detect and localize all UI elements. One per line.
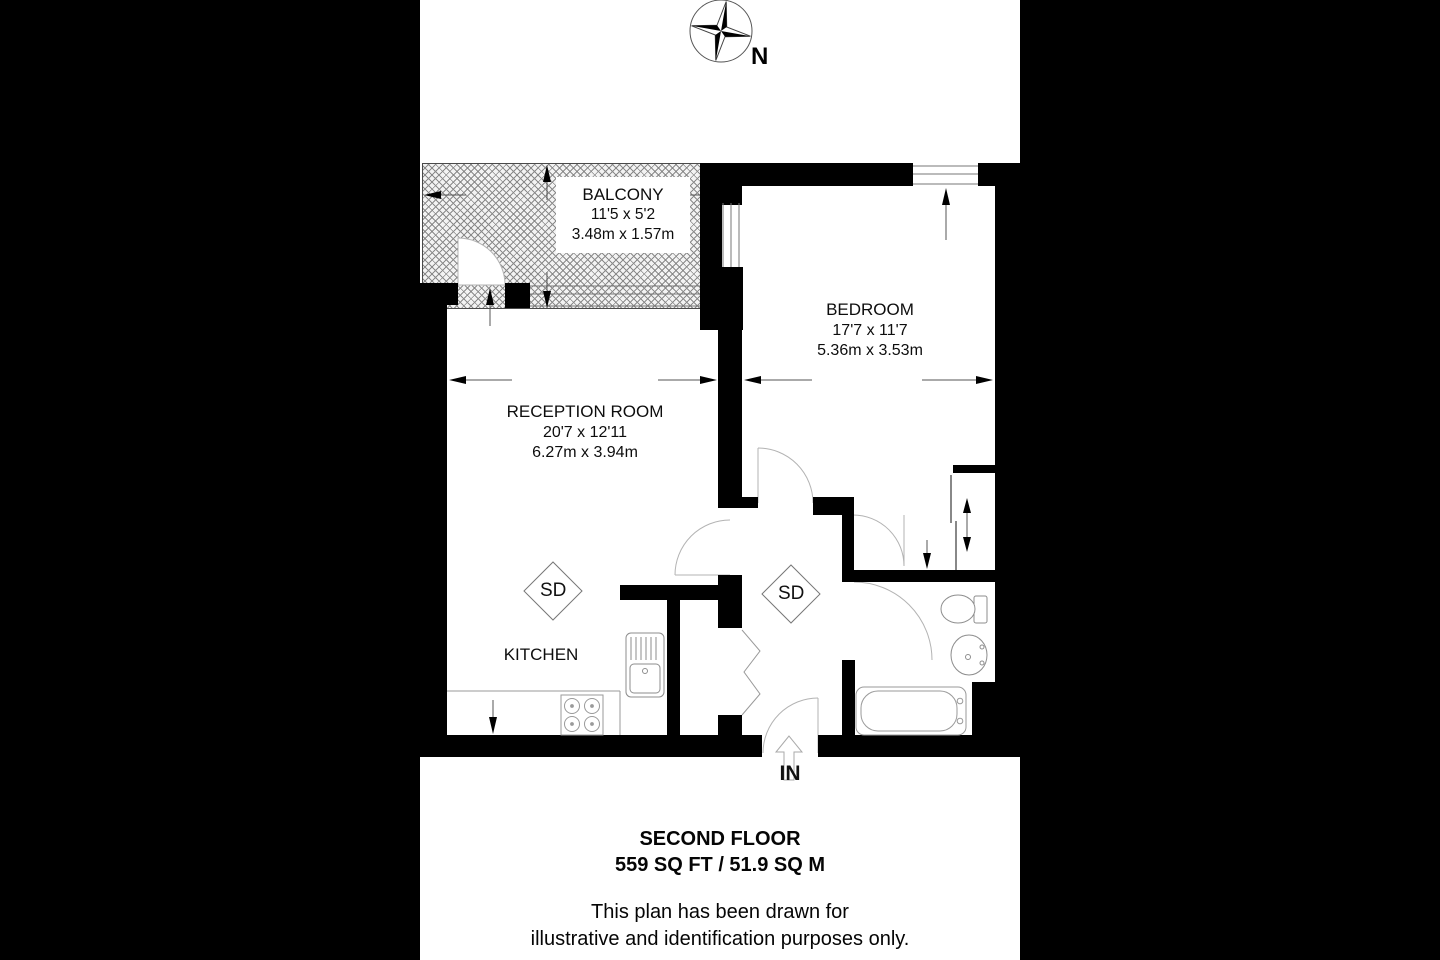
disclaimer-line-2: illustrative and identification purposes… bbox=[420, 928, 1020, 951]
bathtub bbox=[856, 687, 966, 735]
bedroom-side-window bbox=[723, 203, 739, 267]
entrance-door-arc bbox=[763, 698, 818, 753]
smoke-detector-hallway-label: SD bbox=[778, 583, 804, 605]
bedroom-top-window bbox=[913, 166, 978, 184]
reception-dims-metric: 6.27m x 3.94m bbox=[475, 443, 695, 463]
balcony-label: BALCONY 11'5 x 5'2 3.48m x 1.57m bbox=[556, 177, 690, 253]
bedroom-door-arc bbox=[758, 448, 813, 503]
vestibule-door-arc bbox=[853, 515, 904, 566]
entrance-in-label: IN bbox=[764, 762, 816, 786]
disclaimer-line-1: This plan has been drawn for bbox=[420, 901, 1020, 924]
smoke-detector-kitchen-label: SD bbox=[540, 580, 566, 602]
floorplan: N BALCONY 11'5 x 5'2 3.48m x 1.57m BEDRO… bbox=[420, 0, 1020, 960]
toilet bbox=[941, 595, 987, 623]
bedroom-dims-metric: 5.36m x 3.53m bbox=[770, 341, 970, 361]
reception-window bbox=[530, 286, 700, 306]
wash-basin bbox=[951, 635, 987, 675]
balcony-door-arc bbox=[458, 238, 505, 285]
bathroom-door-arc bbox=[854, 582, 932, 660]
reception-door-arc bbox=[675, 520, 730, 575]
kitchen-sink bbox=[626, 633, 664, 697]
floor-area: 559 SQ FT / 51.9 SQ M bbox=[420, 854, 1020, 877]
balcony-name: BALCONY bbox=[556, 185, 690, 205]
reception-name: RECEPTION ROOM bbox=[475, 401, 695, 423]
kitchen-label: KITCHEN bbox=[491, 644, 591, 666]
bedroom-name: BEDROOM bbox=[770, 299, 970, 321]
bifold-cupboard-door bbox=[742, 630, 760, 715]
floorplan-page: N BALCONY 11'5 x 5'2 3.48m x 1.57m BEDRO… bbox=[0, 0, 1440, 960]
bedroom-dims-imperial: 17'7 x 11'7 bbox=[770, 321, 970, 341]
reception-room-label: RECEPTION ROOM 20'7 x 12'11 6.27m x 3.94… bbox=[475, 401, 695, 464]
balcony-dims-imperial: 11'5 x 5'2 bbox=[556, 205, 690, 225]
floor-title: SECOND FLOOR bbox=[420, 828, 1020, 851]
plan-drawing: N bbox=[420, 0, 1020, 960]
compass-north-label: N bbox=[751, 43, 768, 70]
north-compass: N bbox=[690, 0, 768, 70]
closet-sliding-door bbox=[951, 475, 956, 570]
bedroom-label: BEDROOM 17'7 x 11'7 5.36m x 3.53m bbox=[770, 299, 970, 362]
balcony-dims-metric: 3.48m x 1.57m bbox=[556, 225, 690, 245]
hob bbox=[561, 695, 603, 735]
reception-dims-imperial: 20'7 x 12'11 bbox=[475, 423, 695, 443]
